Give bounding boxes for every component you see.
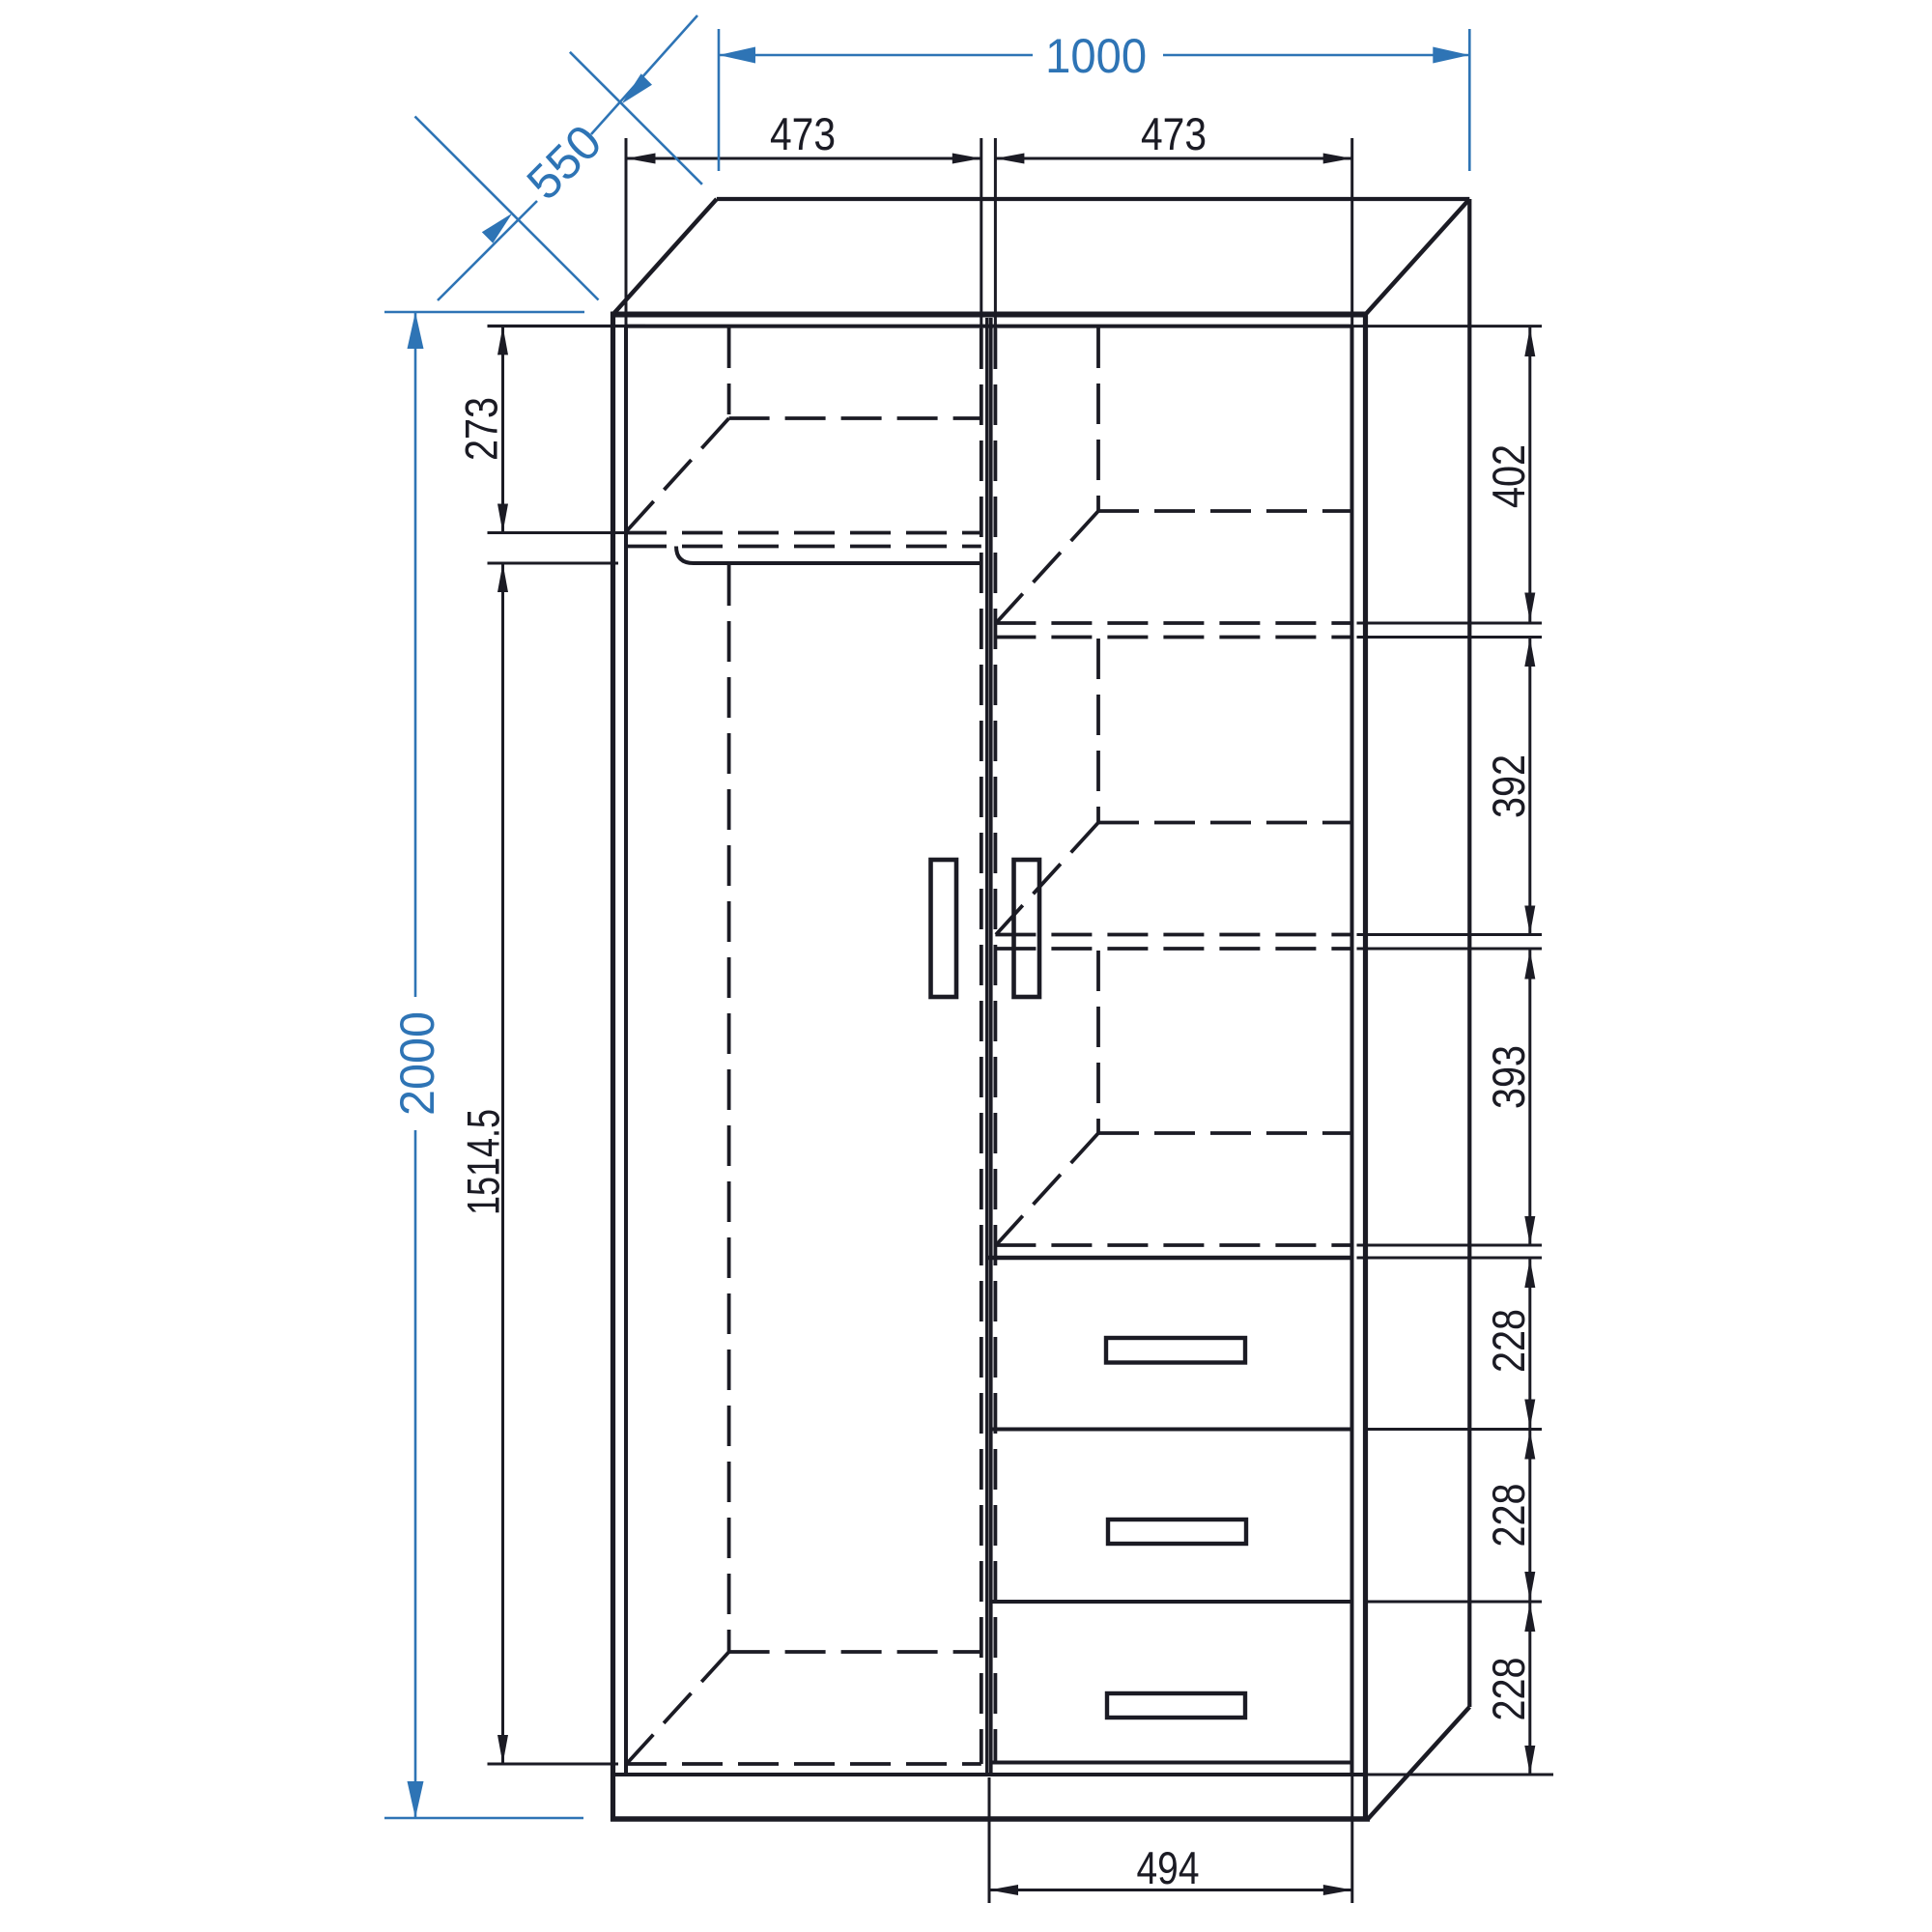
svg-text:392: 392 xyxy=(1483,754,1534,818)
svg-text:1000: 1000 xyxy=(1045,29,1147,83)
svg-text:228: 228 xyxy=(1483,1309,1534,1373)
svg-text:402: 402 xyxy=(1483,444,1534,508)
svg-text:473: 473 xyxy=(1141,108,1207,159)
svg-text:494: 494 xyxy=(1137,1842,1200,1893)
svg-text:1514.5: 1514.5 xyxy=(458,1109,509,1215)
svg-text:2000: 2000 xyxy=(390,1011,444,1116)
svg-text:273: 273 xyxy=(456,397,507,461)
svg-text:228: 228 xyxy=(1483,1658,1534,1721)
svg-text:473: 473 xyxy=(770,108,836,159)
svg-text:393: 393 xyxy=(1483,1045,1534,1109)
svg-text:228: 228 xyxy=(1483,1484,1534,1548)
